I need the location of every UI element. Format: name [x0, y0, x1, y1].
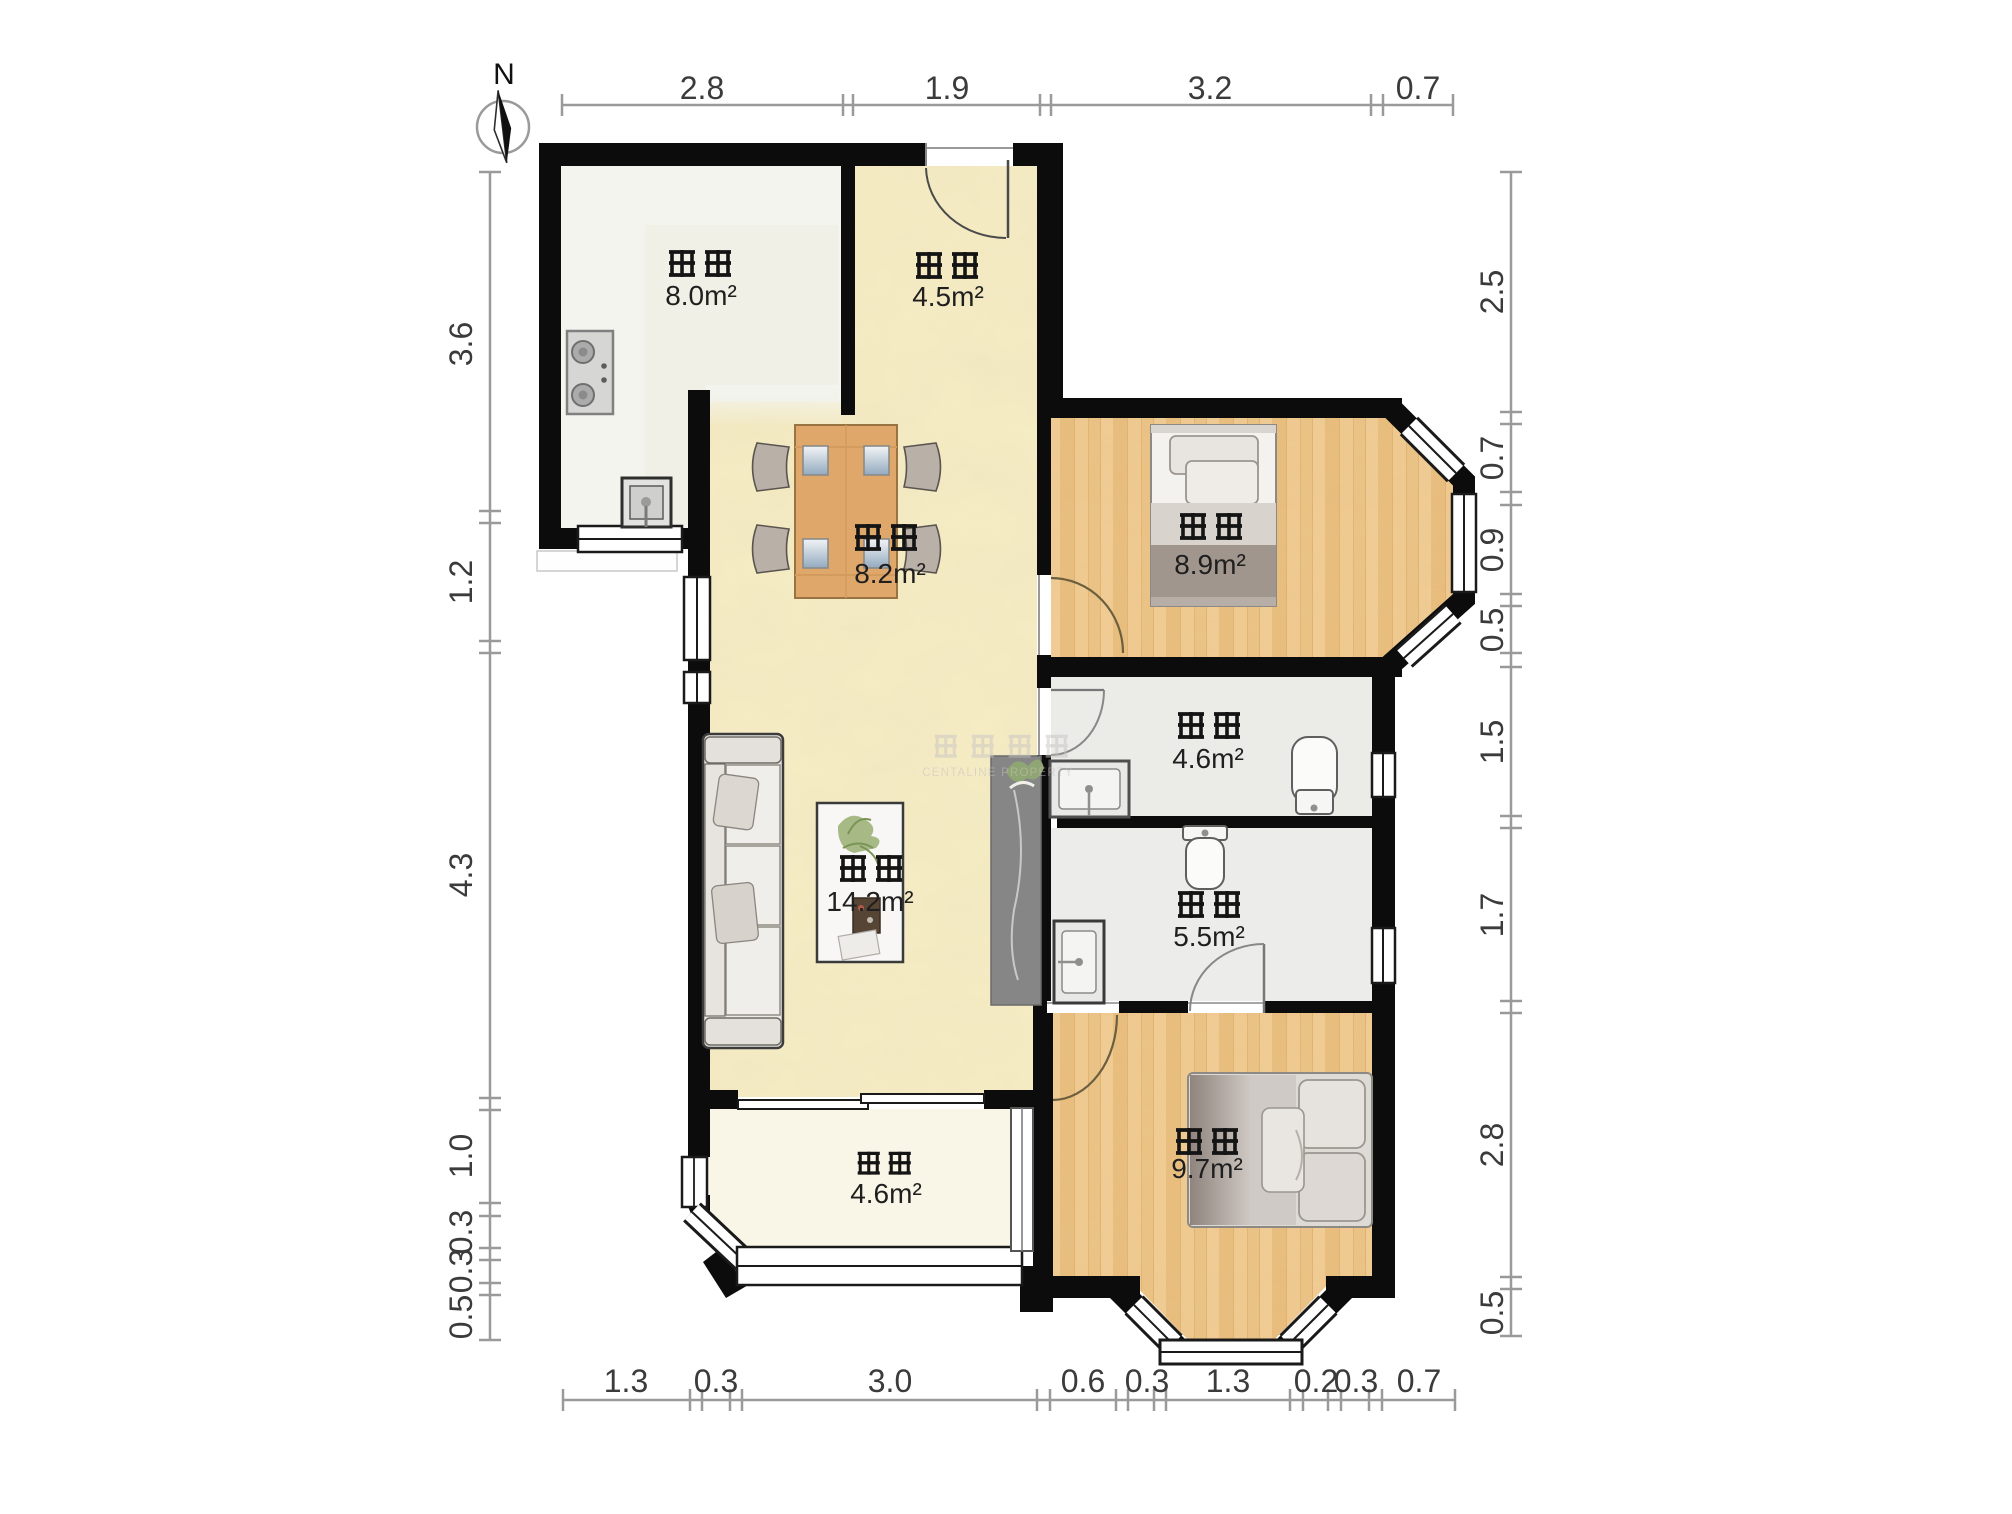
svg-text:14.2m²: 14.2m² [826, 886, 913, 917]
svg-text:0.6: 0.6 [1061, 1363, 1105, 1399]
svg-text:1.7: 1.7 [1474, 893, 1510, 937]
svg-text:0.9: 0.9 [1474, 528, 1510, 572]
svg-text:0.3: 0.3 [1125, 1363, 1169, 1399]
svg-text:4.5m²: 4.5m² [912, 281, 984, 312]
svg-text:0.3: 0.3 [443, 1210, 479, 1254]
svg-text:0.7: 0.7 [1396, 70, 1440, 106]
svg-text:0.3: 0.3 [694, 1363, 738, 1399]
svg-text:5.5m²: 5.5m² [1173, 921, 1245, 952]
svg-text:1.0: 1.0 [443, 1134, 479, 1178]
svg-text:1.3: 1.3 [1206, 1363, 1250, 1399]
svg-text:CENTALINE PROPERTY: CENTALINE PROPERTY [922, 767, 1074, 779]
svg-text:4.3: 4.3 [443, 853, 479, 897]
svg-text:3.6: 3.6 [443, 322, 479, 366]
svg-text:2.8: 2.8 [1474, 1123, 1510, 1167]
svg-text:8.2m²: 8.2m² [854, 558, 926, 589]
svg-text:0.5: 0.5 [1474, 608, 1510, 652]
svg-text:0.5: 0.5 [443, 1295, 479, 1339]
svg-text:4.6m²: 4.6m² [850, 1178, 922, 1209]
svg-text:3.2: 3.2 [1188, 70, 1232, 106]
svg-text:9.7m²: 9.7m² [1171, 1153, 1243, 1184]
svg-text:8.9m²: 8.9m² [1174, 549, 1246, 580]
svg-text:N: N [493, 58, 515, 91]
svg-text:0.2: 0.2 [1294, 1363, 1338, 1399]
svg-text:0.7: 0.7 [1474, 436, 1510, 480]
svg-text:3.0: 3.0 [868, 1363, 912, 1399]
svg-text:4.6m²: 4.6m² [1172, 743, 1244, 774]
svg-text:1.9: 1.9 [925, 70, 969, 106]
svg-text:0.3: 0.3 [1334, 1363, 1378, 1399]
svg-text:2.8: 2.8 [680, 70, 724, 106]
svg-text:0.5: 0.5 [1474, 1291, 1510, 1335]
svg-text:8.0m²: 8.0m² [665, 280, 737, 311]
svg-text:1.3: 1.3 [604, 1363, 648, 1399]
svg-text:1.2: 1.2 [443, 560, 479, 604]
svg-text:2.5: 2.5 [1474, 270, 1510, 314]
svg-text:1.5: 1.5 [1474, 720, 1510, 764]
svg-text:0.7: 0.7 [1397, 1363, 1441, 1399]
svg-text:0.3: 0.3 [443, 1249, 479, 1293]
